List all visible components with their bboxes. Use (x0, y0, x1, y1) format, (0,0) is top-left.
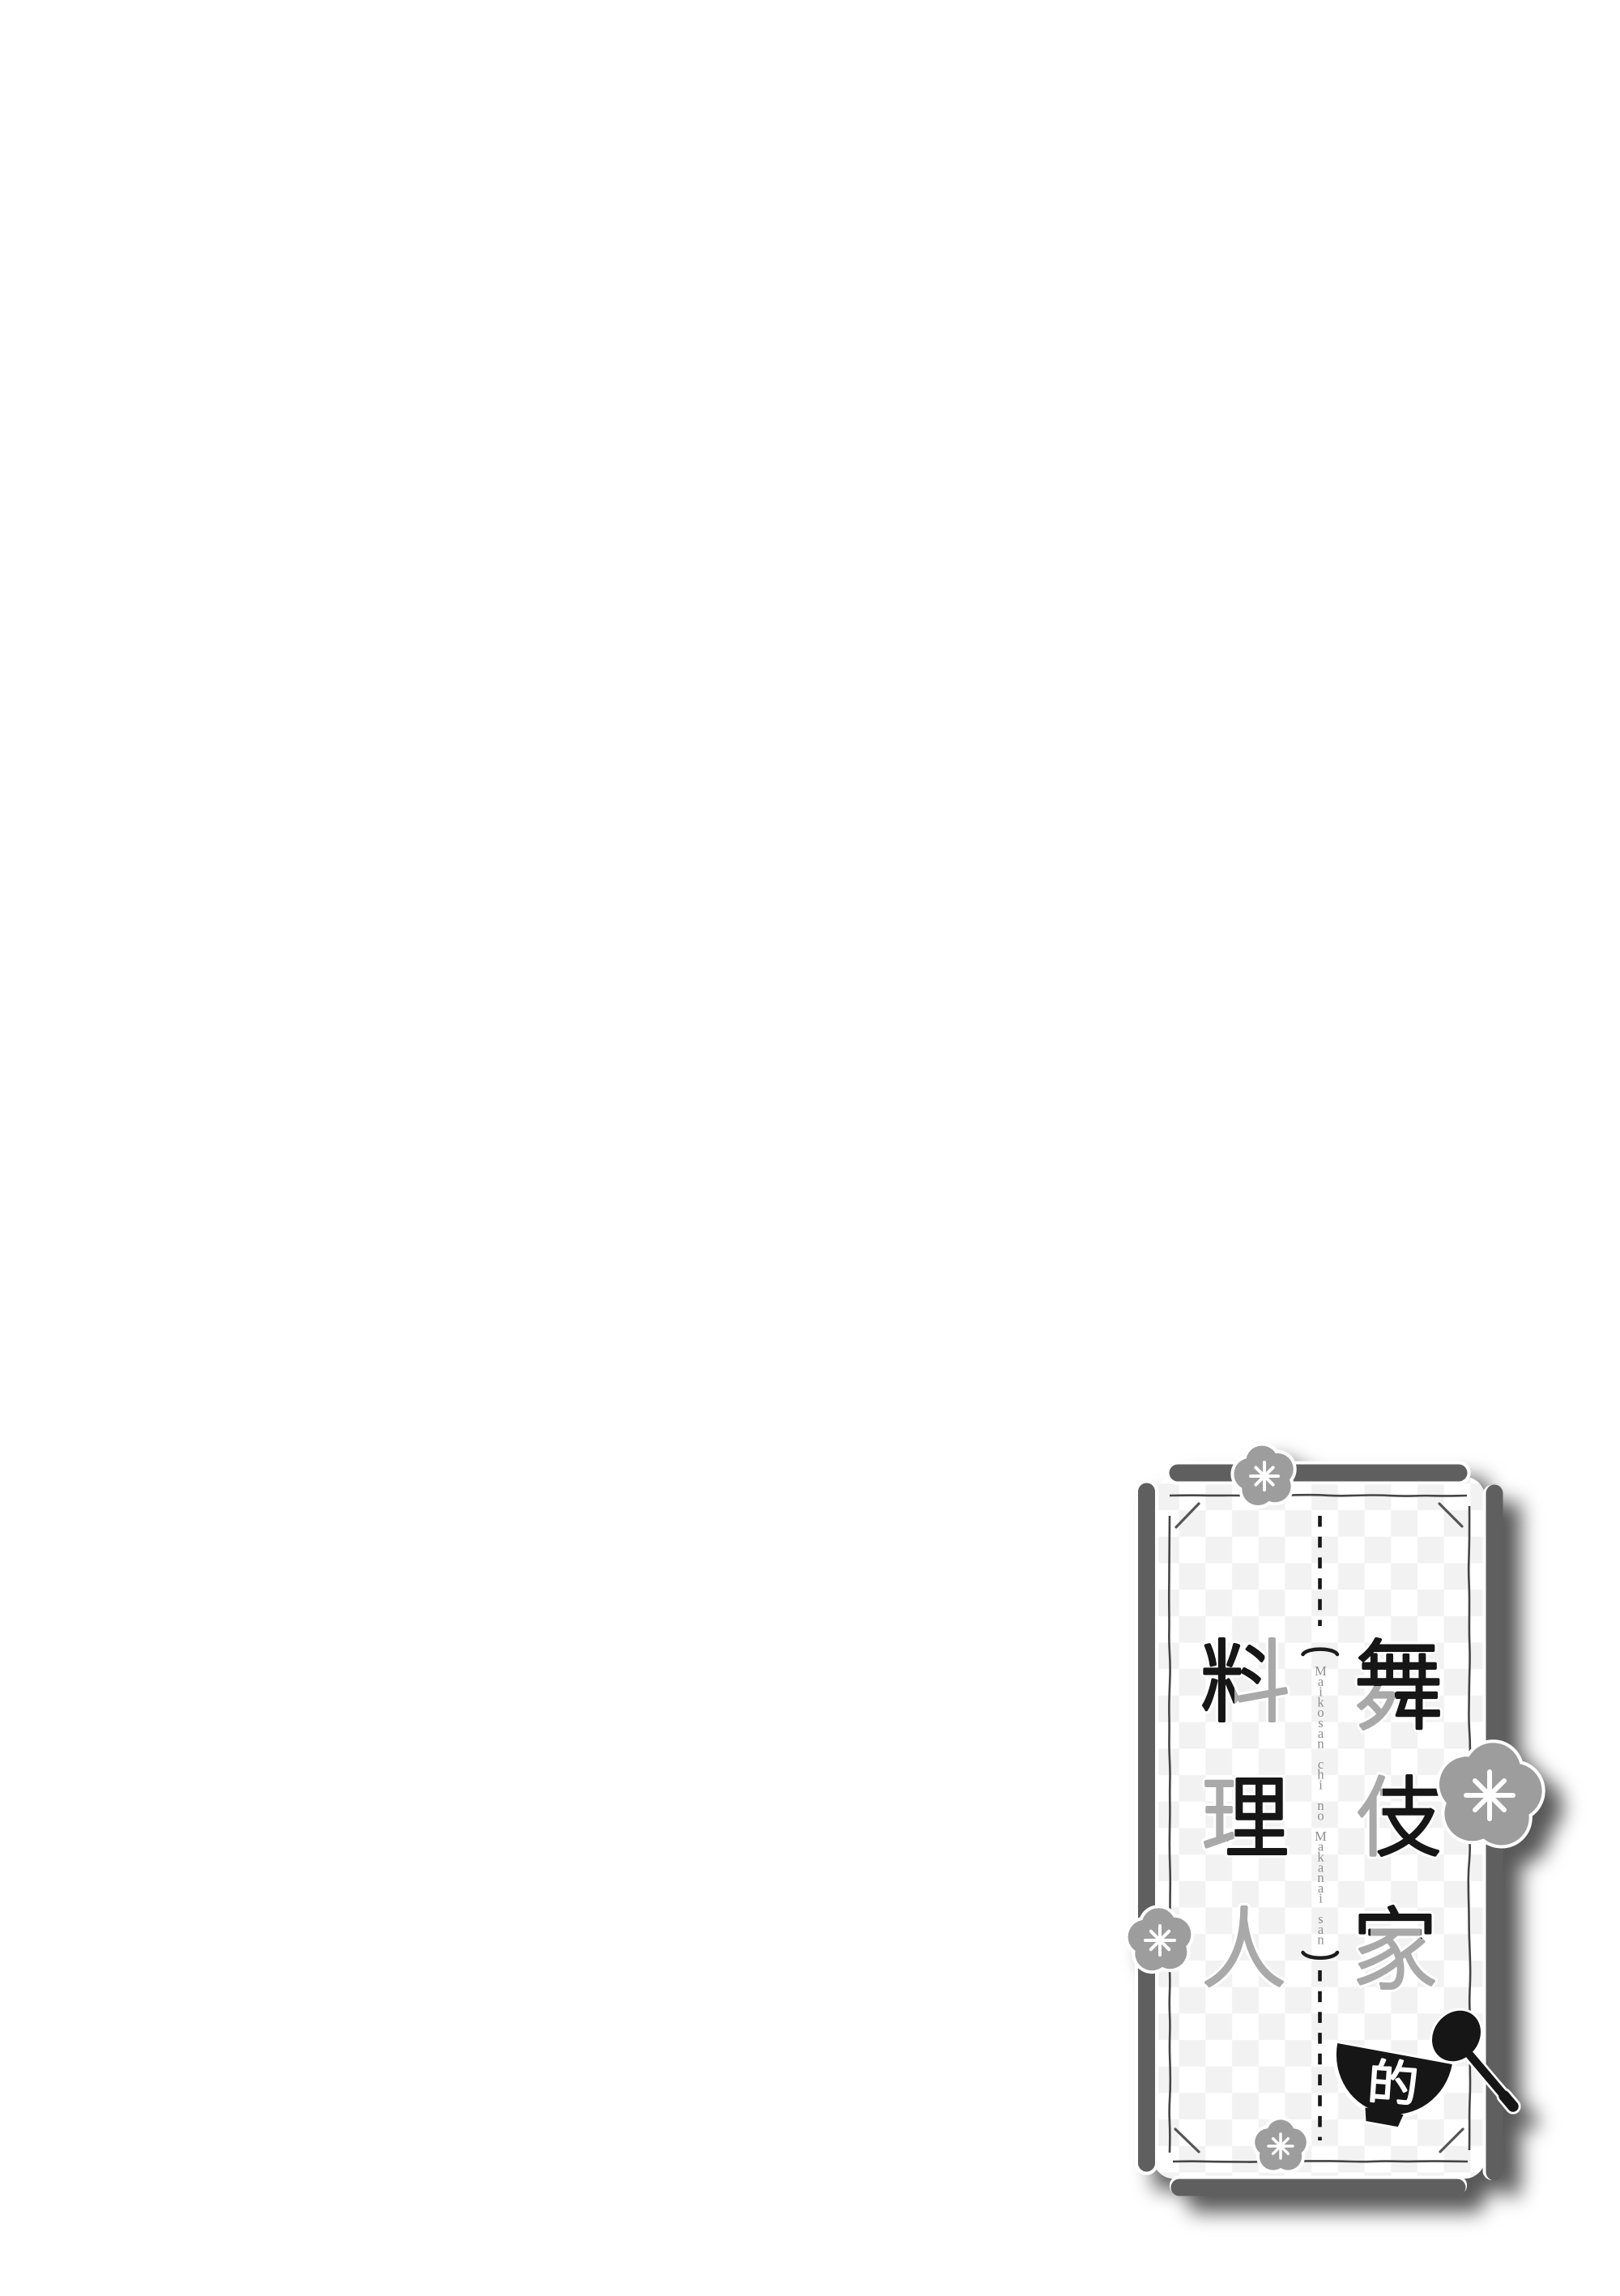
svg-text:i: i (1319, 1777, 1323, 1793)
svg-text:n: n (1317, 1932, 1324, 1948)
svg-text:o: o (1317, 1808, 1324, 1824)
svg-text:i: i (1319, 1891, 1323, 1906)
svg-text:n: n (1317, 1736, 1324, 1752)
